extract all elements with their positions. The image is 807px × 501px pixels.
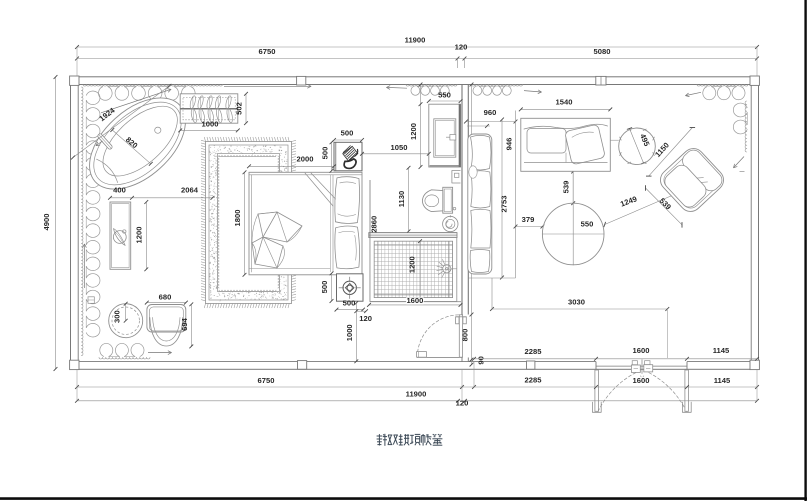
- svg-text:502: 502: [234, 102, 243, 115]
- svg-text:3030: 3030: [568, 298, 585, 307]
- svg-text:500: 500: [341, 129, 354, 138]
- svg-text:400: 400: [113, 185, 126, 194]
- svg-text:539: 539: [562, 181, 571, 194]
- svg-text:6750: 6750: [258, 376, 275, 385]
- svg-text:500: 500: [343, 298, 356, 307]
- svg-text:1600: 1600: [633, 376, 650, 385]
- svg-text:2285: 2285: [525, 375, 543, 384]
- svg-text:120: 120: [455, 43, 468, 52]
- svg-text:6750: 6750: [259, 47, 276, 56]
- svg-text:2064: 2064: [181, 185, 199, 194]
- svg-text:1145: 1145: [713, 346, 730, 355]
- svg-text:550: 550: [438, 90, 451, 99]
- svg-text:5080: 5080: [594, 47, 611, 56]
- svg-text:694: 694: [180, 317, 189, 330]
- svg-text:90: 90: [477, 356, 486, 364]
- svg-text:550: 550: [581, 219, 594, 228]
- svg-text:1000: 1000: [202, 120, 219, 129]
- svg-text:1050: 1050: [391, 143, 408, 152]
- svg-text:1800: 1800: [233, 210, 242, 227]
- svg-text:379: 379: [522, 215, 535, 224]
- svg-text:4900: 4900: [42, 214, 51, 231]
- svg-text:800: 800: [461, 329, 470, 342]
- svg-text:500: 500: [320, 147, 329, 160]
- svg-text:1540: 1540: [556, 98, 573, 107]
- svg-text:2860: 2860: [369, 216, 378, 233]
- svg-text:2285: 2285: [525, 347, 543, 356]
- svg-text:960: 960: [484, 108, 497, 117]
- svg-text:120: 120: [359, 314, 372, 323]
- svg-text:1200: 1200: [409, 123, 418, 140]
- svg-text:1000: 1000: [345, 324, 354, 341]
- svg-text:946: 946: [504, 138, 513, 151]
- svg-text:2000: 2000: [297, 154, 314, 163]
- svg-text:1600: 1600: [633, 346, 650, 355]
- svg-text:11900: 11900: [405, 35, 426, 44]
- svg-text:1600: 1600: [406, 296, 423, 305]
- svg-text:1200: 1200: [135, 227, 144, 244]
- svg-text:2753: 2753: [500, 196, 509, 213]
- svg-text:11900: 11900: [406, 389, 427, 398]
- svg-text:500: 500: [320, 281, 329, 294]
- svg-text:680: 680: [159, 292, 172, 301]
- svg-text:300: 300: [113, 310, 122, 323]
- svg-text:1145: 1145: [714, 376, 731, 385]
- svg-text:1130: 1130: [397, 191, 406, 207]
- svg-text:1200: 1200: [408, 256, 417, 273]
